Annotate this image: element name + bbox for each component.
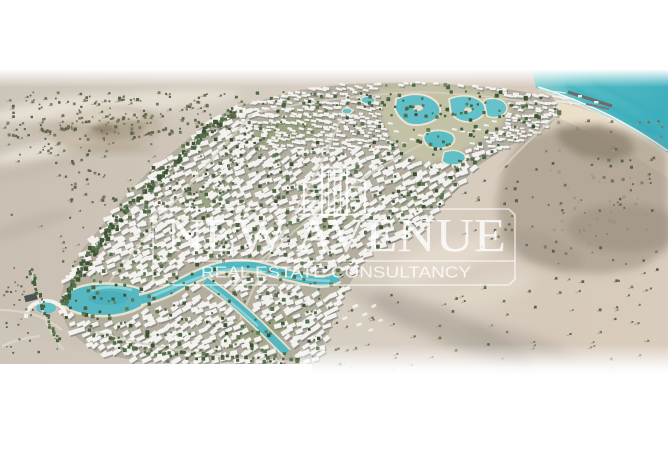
svg-text:REAL ESTATE CONSULTANCY: REAL ESTATE CONSULTANCY <box>201 265 471 282</box>
svg-text:NEW AVENUE: NEW AVENUE <box>166 210 506 263</box>
